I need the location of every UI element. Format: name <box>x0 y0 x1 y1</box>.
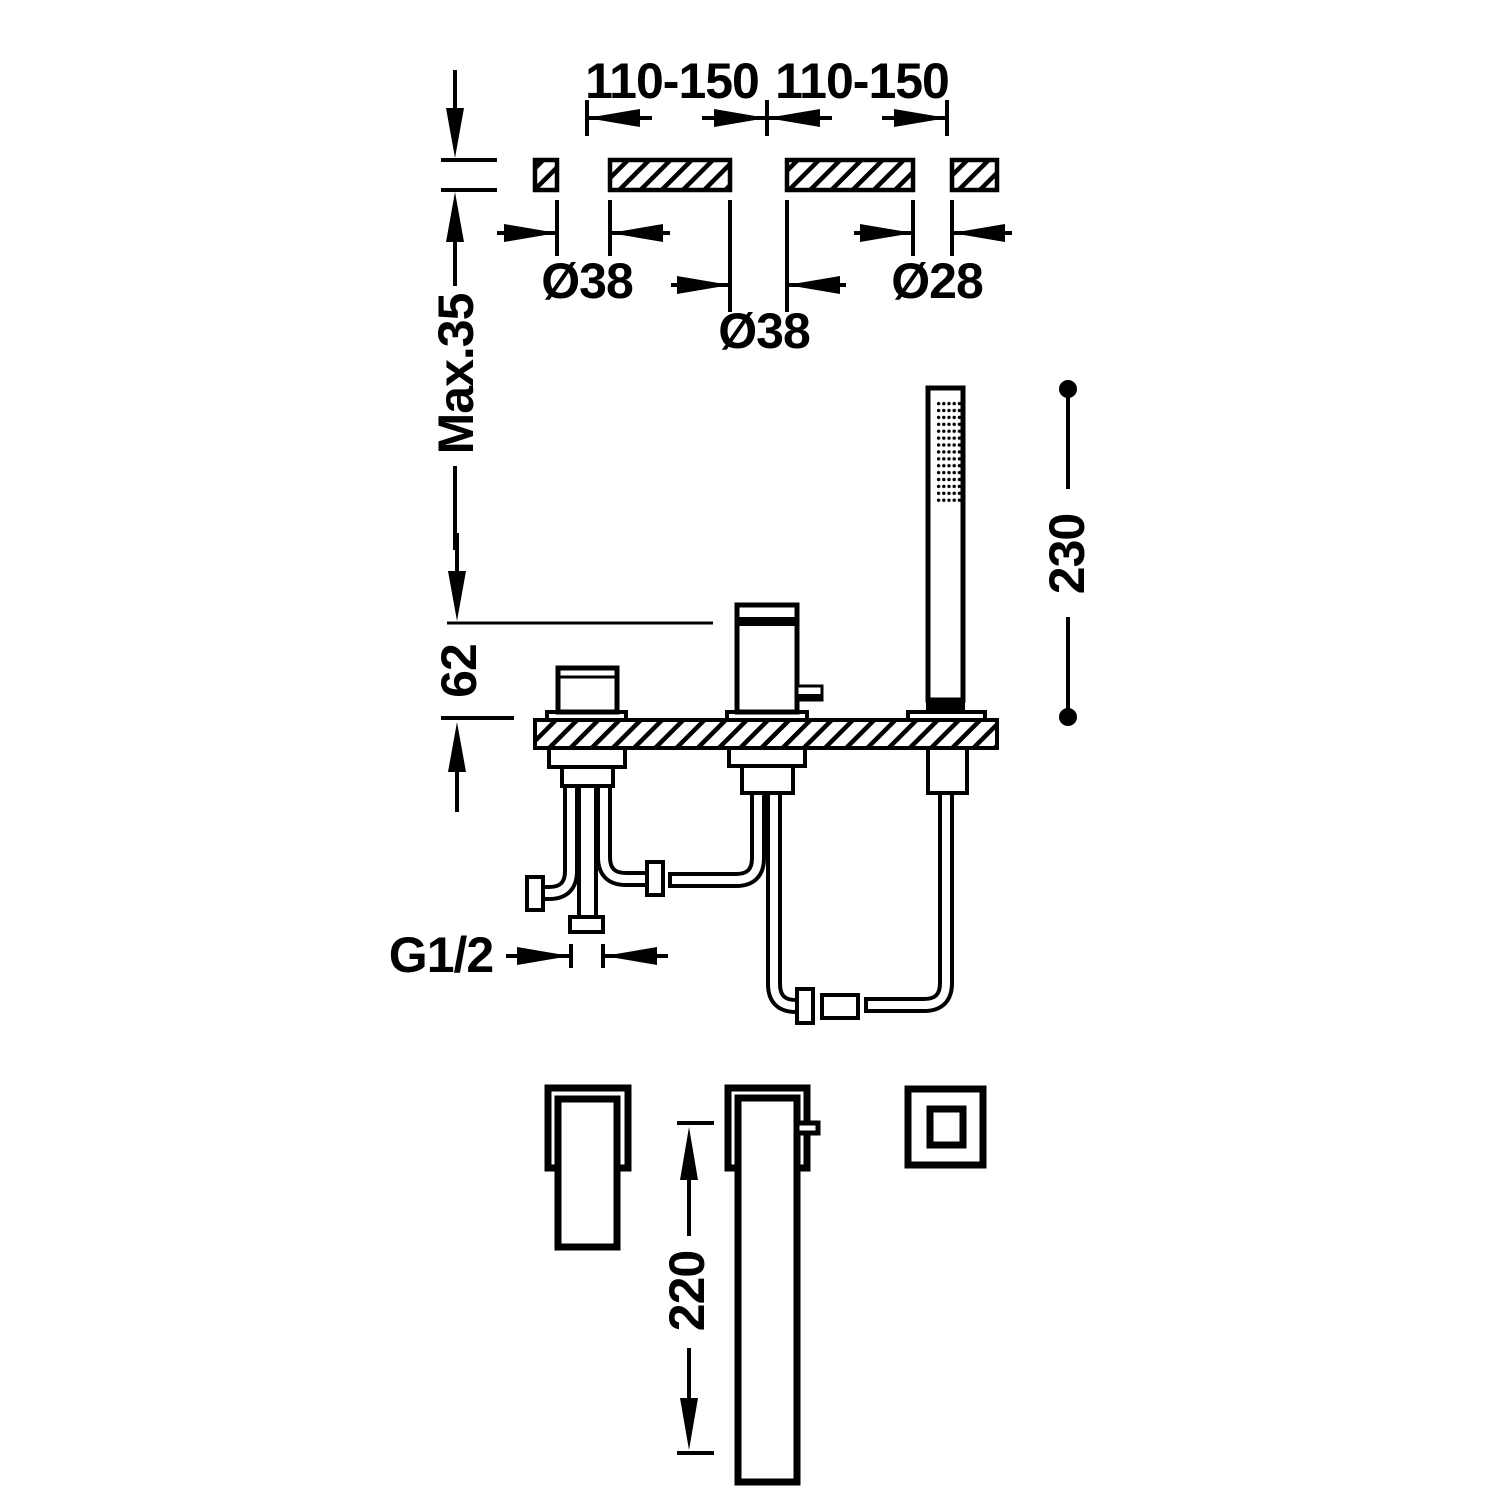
technical-drawing-canvas: 110-150 110-150 Ø38 Ø38 Ø28 Max.35 62 23… <box>0 0 1500 1500</box>
hose-union-flange <box>797 989 813 1023</box>
handle-valve-stem <box>579 786 596 917</box>
dim-label-handshower-height: 230 <box>1042 514 1092 594</box>
handle-front-view <box>548 1088 628 1247</box>
dim-label-hole3-diameter: Ø28 <box>891 256 983 306</box>
handshower-underdeck-body <box>928 748 967 793</box>
deck-side-section <box>535 720 997 748</box>
spout-front-view <box>728 1088 818 1482</box>
under-deck-plumbing <box>506 748 967 1023</box>
handle-thread-end <box>570 917 603 932</box>
dim-label-hole1-diameter: Ø38 <box>541 256 633 306</box>
dim-label-body-height: 62 <box>434 644 484 698</box>
spout-mounting-flange <box>729 748 805 766</box>
supply-pipes <box>540 778 946 1006</box>
handshower-side-view <box>908 388 985 720</box>
handshower-holder-front-view <box>908 1089 983 1165</box>
dim-label-countertop-thickness: Max.35 <box>431 294 481 455</box>
handle-valve-body <box>562 767 613 786</box>
handshower-spray-face <box>935 401 961 503</box>
handle-mounting-flange <box>549 748 625 767</box>
front-views <box>548 1088 983 1482</box>
spout-valve-body <box>742 766 793 793</box>
hose-union-nut <box>822 995 858 1018</box>
pipe-union-left <box>527 877 543 910</box>
pipe-union-right <box>647 862 663 895</box>
dim-label-hole2-diameter: Ø38 <box>718 306 810 356</box>
handle-side-view <box>547 668 626 720</box>
spout-side-view <box>727 605 822 720</box>
dim-label-connection-thread: G1/2 <box>389 930 493 980</box>
deck-hatched-segments <box>535 160 997 190</box>
dim-label-span-right: 110-150 <box>775 56 949 106</box>
dim-label-spout-length: 220 <box>662 1251 712 1331</box>
technical-drawing <box>0 0 1500 1500</box>
dim-label-span-left: 110-150 <box>585 56 759 106</box>
dim-g12-lines <box>506 944 668 968</box>
